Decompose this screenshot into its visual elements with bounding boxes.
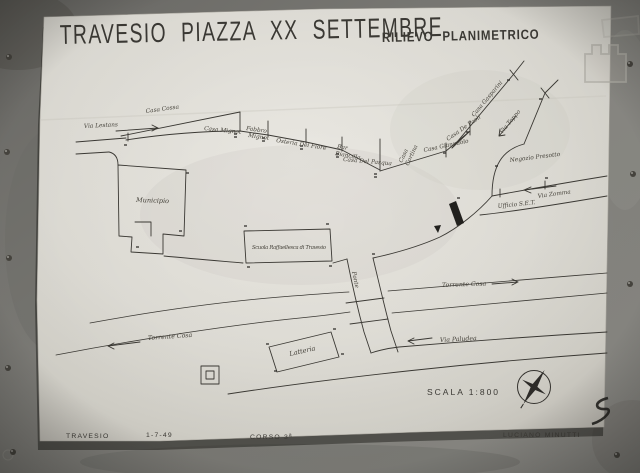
photograph-of-survey-map: Via Lestans Casa Cossa Casa Mignot Fabbr…	[0, 0, 640, 473]
photo-vignette	[0, 0, 640, 473]
survey-photo-svg: Via Lestans Casa Cossa Casa Mignot Fabbr…	[0, 0, 640, 473]
